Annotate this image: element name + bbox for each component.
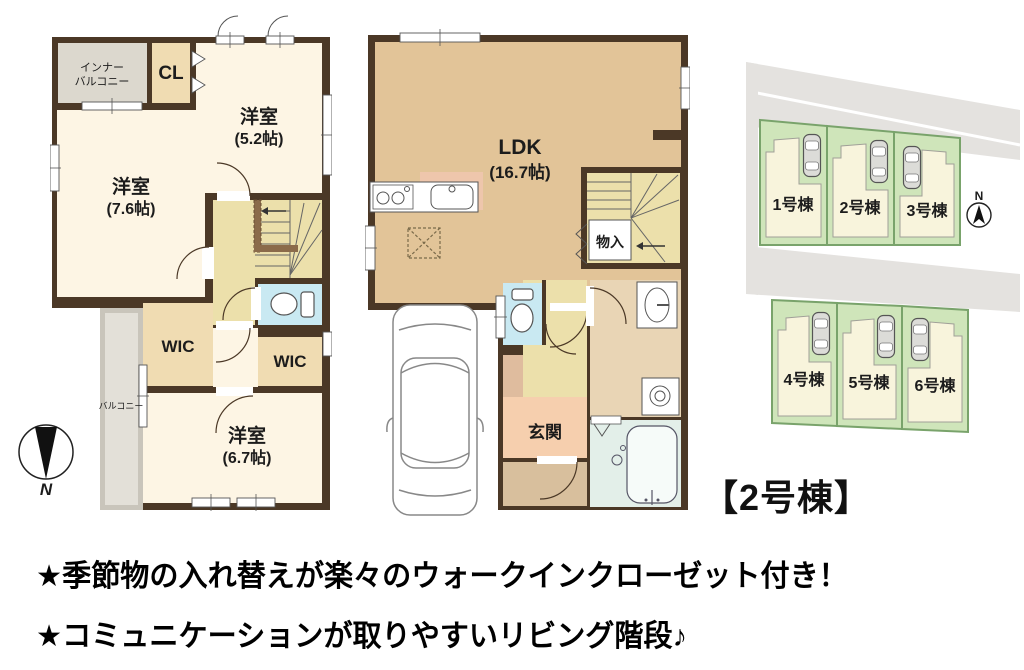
label-lot-3: 3号棟 [907,201,949,220]
car-lot-1 [804,135,821,177]
label-lot-4: 4号棟 [784,370,826,389]
label-lot-5: 5号棟 [849,373,891,392]
room-western-6-7 [143,393,322,503]
car-icon [387,305,483,515]
floorplan-compass: N [10,418,82,498]
label-entrance: 玄関 [528,422,562,442]
label-room52-size: (5.2帖) [235,129,284,148]
label-lot-6: 6号棟 [915,376,957,395]
label-room52-name: 洋室 [240,105,278,128]
car-lot-2 [871,141,888,183]
label-cl: CL [158,63,184,84]
stair-rail-vertical [254,200,261,252]
hall-2f [213,200,255,325]
top-window-arcs [218,16,288,36]
car-lot-3 [904,147,921,189]
kitchen-counter [370,182,478,212]
floor-plan-2f: インナー バルコニー CL 洋室 (5.2帖) 洋室 (7.6帖) WIC WI… [50,15,332,520]
label-wic-right: WIC [273,352,306,371]
feature-line-1: ★季節物の入れ替えが楽々のウォークインクローゼット付き！ [36,551,848,595]
washer-icon [642,378,679,415]
porch [503,462,587,506]
label-wic-left: WIC [161,337,194,356]
car-lot-5 [878,316,895,358]
car-lot-4 [813,313,830,355]
vanity-sink-icon [637,282,677,328]
car-lot-6 [912,319,929,361]
label-storage: 物入 [596,234,624,250]
floor-plan-1f: LDK (16.7帖) 物入 玄関 [365,28,690,520]
label-room67-size: (6.7帖) [223,448,272,467]
site-compass: N [967,189,991,227]
wall-toilet [542,280,546,345]
toilet-icon-1f [511,289,533,332]
label-ldk-size: (16.7帖) [489,162,550,182]
label-inner-balcony-1: インナー [80,61,124,74]
unit-title: 【2号棟】 [702,469,871,521]
site-compass-n-label: N [975,189,984,203]
wall-stub [653,130,688,140]
label-inner-balcony-2: バルコニー [75,75,130,88]
label-balcony: バルコニー [99,401,144,411]
label-lot-1: 1号棟 [773,195,815,214]
label-room67-name: 洋室 [228,424,266,447]
label-room76-name: 洋室 [112,175,150,198]
stove-icon [373,185,413,209]
compass-n-label: N [40,480,53,498]
sink-icon [431,185,473,209]
label-lot-2: 2号棟 [840,198,882,217]
feature-line-2: ★コミュニケーションが取りやすいリビング階段♪ [36,611,687,655]
stair-rail-horizontal [254,245,298,252]
hall-connector [213,328,258,387]
site-plan: 1号棟 2号棟 3号棟 4号棟 5号棟 6号棟 N [742,60,1024,475]
label-ldk-name: LDK [498,136,541,159]
label-room76-size: (7.6帖) [107,199,156,218]
